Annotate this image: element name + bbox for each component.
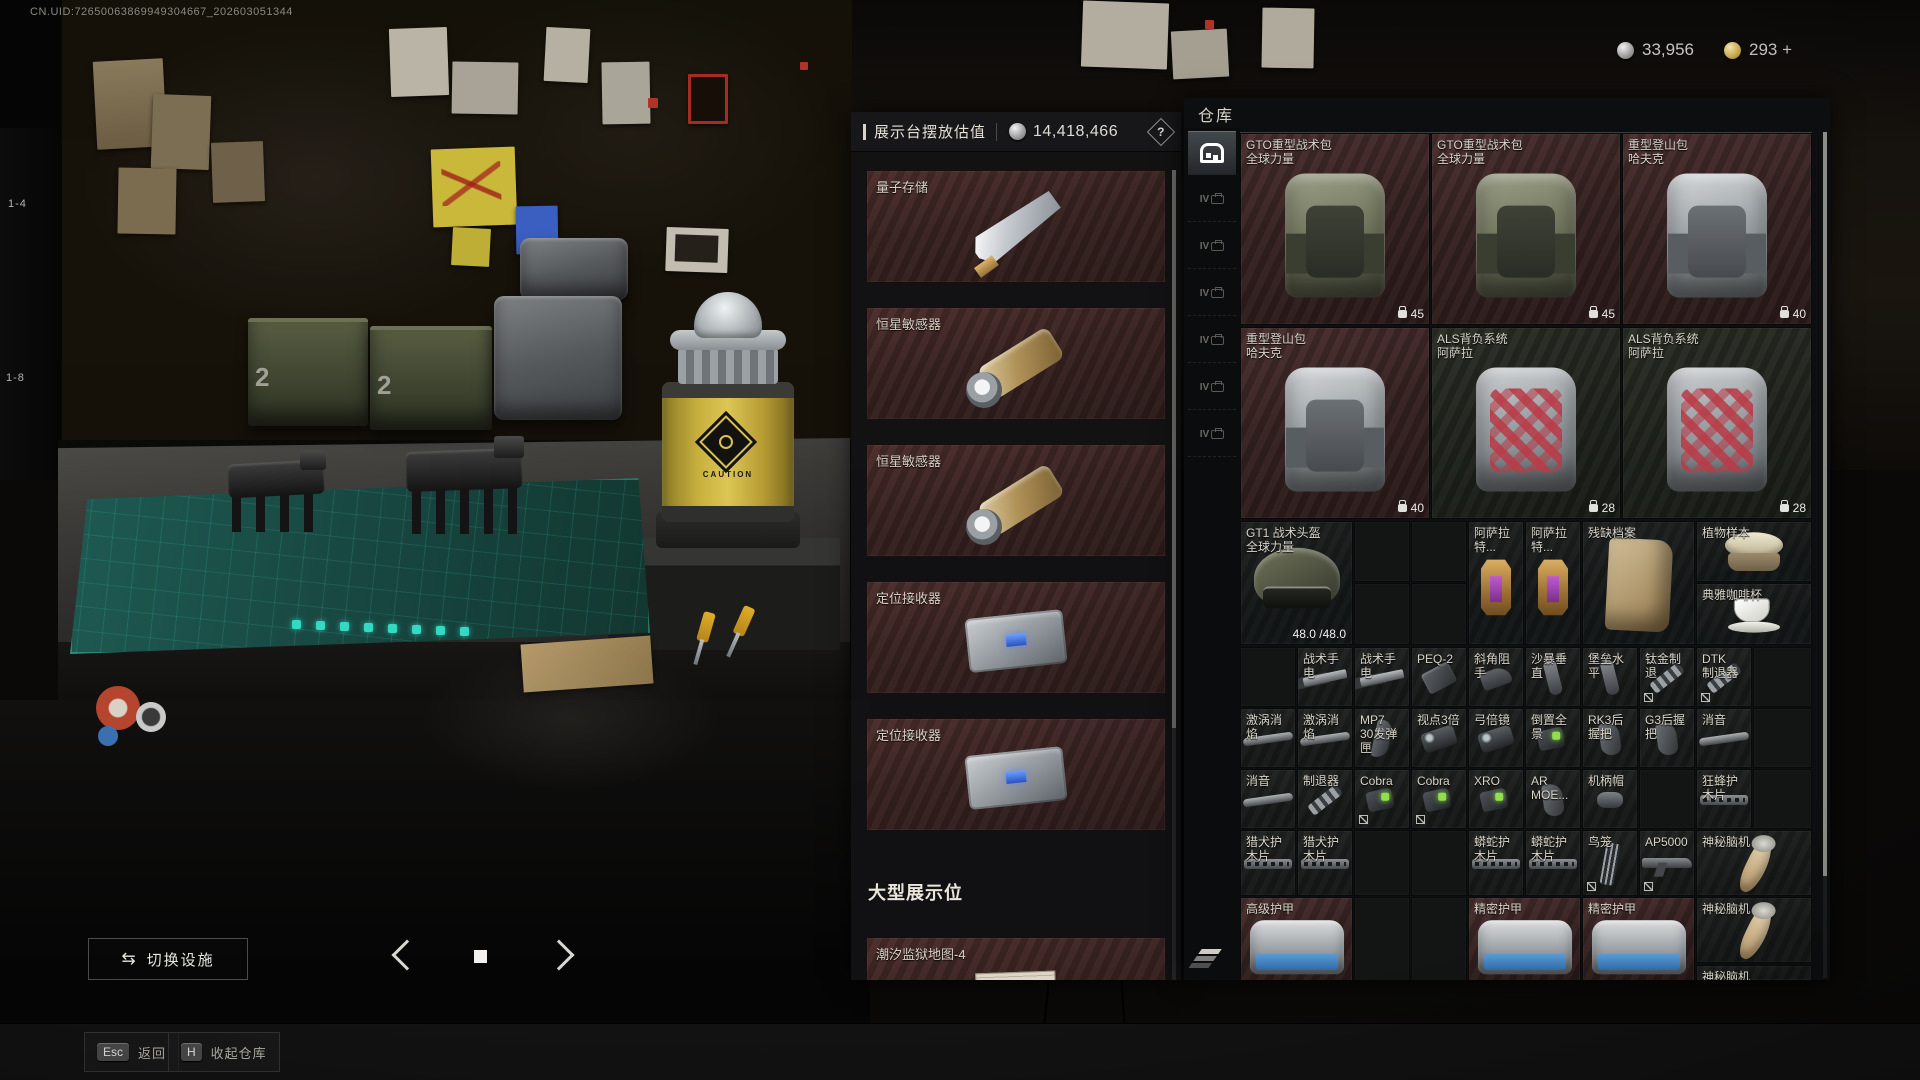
- warehouse-item[interactable]: G3后握把: [1639, 708, 1695, 768]
- warehouse-title: 仓库: [1198, 102, 1234, 126]
- cutting-mat: [70, 478, 650, 654]
- item-label: ALS背负系统阿萨拉: [1623, 328, 1811, 360]
- capacity-badge: 45: [1589, 307, 1615, 321]
- warehouse-item[interactable]: 消音: [1240, 769, 1296, 829]
- warehouse-empty-cell: [1753, 708, 1812, 768]
- item-art: [867, 308, 1165, 419]
- item-label: 视点3倍: [1412, 709, 1466, 727]
- warehouse-item[interactable]: 神秘脑机: [1696, 897, 1812, 963]
- warehouse-scrollbar[interactable]: [1823, 132, 1827, 978]
- currency-bar: 33,956 293 +: [1617, 40, 1792, 60]
- round-sticker: [136, 702, 166, 732]
- warehouse-item[interactable]: 蟒蛇护木片: [1525, 830, 1581, 896]
- collapse-warehouse-button[interactable]: H 收起仓库: [168, 1032, 280, 1072]
- warehouse-tab-case-tier[interactable]: IV: [1188, 413, 1236, 457]
- kit-marker-icon: [1644, 882, 1653, 891]
- warehouse-item[interactable]: 重型登山包哈夫克 40: [1622, 133, 1812, 325]
- warehouse-item[interactable]: GT1 战术头盔全球力量 48.0 /48.0: [1240, 521, 1353, 645]
- robot-figure-legs: [232, 492, 324, 532]
- capacity-badge: 45: [1398, 307, 1424, 321]
- case-icon: [1211, 336, 1224, 345]
- container-tier-icon: IV: [1200, 241, 1224, 252]
- warehouse-item[interactable]: GTO重型战术包全球力量 45: [1431, 133, 1621, 325]
- case-icon: [1211, 195, 1224, 204]
- warehouse-item[interactable]: 重型登山包哈夫克 40: [1240, 327, 1430, 519]
- bag-icon: [1780, 310, 1789, 318]
- item-label: 倒置全景: [1526, 709, 1580, 741]
- bag-icon: [1780, 504, 1789, 512]
- silver-coin-icon: [1617, 42, 1634, 59]
- mat-led: [436, 626, 445, 635]
- warehouse-tab-case-tier[interactable]: IV: [1188, 225, 1236, 269]
- warehouse-item[interactable]: 神秘脑机: [1696, 965, 1812, 980]
- item-label: G3后握把: [1640, 709, 1694, 741]
- mat-led: [364, 623, 373, 632]
- warehouse-empty-cell: [1753, 647, 1812, 707]
- map-pin: [800, 62, 808, 70]
- game-screen: 1-4 1-8 2 2 CAUTION CN.UID:7265006386: [0, 0, 1920, 1080]
- warehouse-item[interactable]: 狂蜂护木片: [1696, 769, 1752, 829]
- pinned-paper: [151, 94, 212, 170]
- mat-led: [292, 620, 301, 629]
- warehouse-item[interactable]: 弓倍镜: [1468, 708, 1524, 768]
- item-art: [867, 445, 1165, 556]
- warehouse-item[interactable]: 阿萨拉特...: [1468, 521, 1524, 645]
- warehouse-item[interactable]: 鸟笼: [1582, 830, 1638, 896]
- warehouse-item[interactable]: 制退器: [1297, 769, 1353, 829]
- item-label: 狂蜂护木片: [1697, 770, 1751, 802]
- robot-figure-head: [494, 436, 524, 458]
- warehouse-item[interactable]: XRO: [1468, 769, 1524, 829]
- stash-icon: [1200, 143, 1224, 163]
- item-label: DTK制退器: [1697, 648, 1751, 680]
- warehouse-grid: GTO重型战术包全球力量 45 GTO重型战术包全球力量 45 重型登山包哈夫克…: [1240, 132, 1812, 980]
- item-label: 神秘脑机: [1697, 898, 1811, 916]
- bag-icon: [1398, 310, 1407, 318]
- pinned-paper: [1171, 29, 1229, 80]
- mat-led: [388, 624, 397, 633]
- pinned-photo: [665, 227, 728, 273]
- large-display-slot[interactable]: 潮汐监狱地图-4: [866, 937, 1166, 980]
- item-label: 消音: [1697, 709, 1751, 727]
- kit-marker-icon: [1587, 882, 1596, 891]
- item-label: 典雅咖啡杯: [1697, 584, 1811, 602]
- pinned-paper: [544, 27, 591, 83]
- warehouse-empty-cell: [1354, 521, 1410, 582]
- scrollbar-thumb[interactable]: [1823, 132, 1827, 876]
- item-label: 机柄帽: [1583, 770, 1637, 788]
- pinned-paper: [117, 167, 176, 234]
- item-label: 猎犬护木片: [1241, 831, 1295, 863]
- map-pin: [1205, 20, 1214, 29]
- h-keycap: H: [181, 1043, 202, 1061]
- warehouse-item[interactable]: ALS背负系统阿萨拉 28: [1622, 327, 1812, 519]
- pinned-paper: [211, 141, 265, 203]
- warehouse-empty-cell: [1240, 647, 1296, 707]
- warehouse-item[interactable]: 钛金制退: [1639, 647, 1695, 707]
- warehouse-empty-cell: [1411, 521, 1467, 582]
- case-icon: [1211, 430, 1224, 439]
- switch-facility-button[interactable]: ⇆ 切换设施: [88, 938, 248, 980]
- valuation-value-group: 14,418,466: [996, 123, 1118, 141]
- pinned-paper: [389, 27, 449, 97]
- warehouse-item[interactable]: 猎犬护木片: [1240, 830, 1296, 896]
- item-label: 制退器: [1298, 770, 1352, 788]
- item-art: [867, 719, 1165, 830]
- robot-figure-legs: [412, 486, 524, 534]
- item-label: Cobra: [1412, 770, 1466, 788]
- warehouse-tab-case-tier[interactable]: IV: [1188, 366, 1236, 410]
- item-label: 堡垒水平: [1583, 648, 1637, 680]
- bottom-hotkey-bar: Esc 返回 H 收起仓库: [0, 1023, 1920, 1080]
- item-label: MP730发弹匣: [1355, 709, 1409, 755]
- item-label: GTO重型战术包全球力量: [1432, 134, 1620, 166]
- warehouse-item[interactable]: 战术手电: [1297, 647, 1353, 707]
- warehouse-item[interactable]: 精密护甲: [1582, 897, 1695, 980]
- hazard-glyph-icon: [719, 435, 733, 449]
- mat-led: [460, 627, 469, 636]
- bag-icon: [1589, 504, 1598, 512]
- warehouse-empty-cell: [1354, 830, 1410, 896]
- warehouse-tab-strip: IV IV IV IV IV IV: [1184, 128, 1240, 980]
- item-label: 高级护甲: [1241, 898, 1352, 916]
- warehouse-empty-cell: [1753, 769, 1812, 829]
- warehouse-item[interactable]: 阿萨拉特...: [1525, 521, 1581, 645]
- item-label: 植物样本: [1697, 522, 1811, 540]
- item-label: GT1 战术头盔全球力量: [1241, 522, 1352, 554]
- switch-icon: ⇆: [121, 949, 137, 969]
- currency-silver[interactable]: 33,956: [1617, 40, 1694, 60]
- warehouse-panel: 仓库 IV IV IV IV IV: [1184, 98, 1830, 980]
- warehouse-item[interactable]: AP5000: [1639, 830, 1695, 896]
- item-label: AP5000: [1640, 831, 1694, 849]
- red-framed-photo: [688, 74, 728, 124]
- help-button[interactable]: ?: [1147, 117, 1175, 145]
- canister-band: [662, 506, 794, 522]
- shelf-label: 1-8: [6, 372, 25, 384]
- warehouse-item[interactable]: 神秘脑机: [1696, 830, 1812, 896]
- warehouse-item[interactable]: 精密护甲: [1468, 897, 1581, 980]
- sticky-note-yellow-small: [451, 227, 491, 267]
- warehouse-item[interactable]: Cobra: [1411, 769, 1467, 829]
- case-icon: [1211, 383, 1224, 392]
- robot-figure-head: [300, 450, 326, 470]
- item-label: Cobra: [1355, 770, 1409, 788]
- item-label: 战术手电: [1298, 648, 1352, 680]
- capacity-badge: 40: [1398, 501, 1424, 515]
- item-art: [1583, 522, 1694, 644]
- scrollbar-thumb[interactable]: [1172, 170, 1176, 728]
- warehouse-item[interactable]: ALS背负系统阿萨拉 28: [1431, 327, 1621, 519]
- warehouse-item[interactable]: Cobra: [1354, 769, 1410, 829]
- item-label: PEQ-2: [1412, 648, 1466, 666]
- back-label: 返回: [138, 1043, 166, 1062]
- floor-light: [420, 650, 720, 790]
- container-tier-icon: IV: [1200, 382, 1224, 393]
- warehouse-item[interactable]: PEQ-2: [1411, 647, 1467, 707]
- warehouse-tab-case-tier[interactable]: IV: [1188, 319, 1236, 363]
- warehouse-tab-case-tier[interactable]: IV: [1188, 178, 1236, 222]
- display-slot[interactable]: 量子存储: [866, 170, 1166, 283]
- case-icon: [1211, 242, 1224, 251]
- warehouse-item[interactable]: 激涡消焰: [1297, 708, 1353, 768]
- item-label: 沙暴垂直: [1526, 648, 1580, 680]
- warehouse-item[interactable]: 堡垒水平: [1582, 647, 1638, 707]
- map-pin: [648, 98, 658, 108]
- crate-number: 2: [255, 362, 269, 393]
- bag-icon: [1398, 504, 1407, 512]
- item-art: [867, 171, 1165, 282]
- item-art: [867, 938, 1165, 980]
- sticky-note-yellow: [431, 147, 518, 228]
- item-label: 猎犬护木片: [1298, 831, 1352, 863]
- mat-led: [316, 621, 325, 630]
- item-label: 鸟笼: [1583, 831, 1637, 849]
- item-label: 激涡消焰: [1241, 709, 1295, 741]
- round-sticker: [98, 726, 118, 746]
- valuation-header: 展示台摆放估值 14,418,466 ?: [851, 112, 1181, 152]
- pinned-paper: [452, 61, 519, 114]
- currency-gold-value: 293 +: [1749, 40, 1792, 60]
- currency-silver-value: 33,956: [1642, 40, 1694, 60]
- tool-case-small: [520, 238, 628, 300]
- gold-coin-icon: [1724, 42, 1741, 59]
- item-label: 神秘脑机: [1697, 966, 1811, 980]
- warehouse-empty-cell: [1354, 583, 1410, 645]
- kit-marker-icon: [1416, 815, 1425, 824]
- warehouse-item[interactable]: MP730发弹匣: [1354, 708, 1410, 768]
- warehouse-item[interactable]: 植物样本: [1696, 521, 1812, 582]
- round-sticker: [96, 686, 140, 730]
- item-label: 神秘脑机: [1697, 831, 1811, 849]
- esc-keycap: Esc: [97, 1043, 129, 1061]
- item-label: ALS背负系统阿萨拉: [1432, 328, 1620, 360]
- warehouse-item[interactable]: DTK制退器: [1696, 647, 1752, 707]
- warehouse-item[interactable]: GTO重型战术包全球力量 45: [1240, 133, 1430, 325]
- kit-marker-icon: [1359, 815, 1368, 824]
- pinned-paper: [601, 62, 650, 125]
- item-label: 斜角阻手: [1469, 648, 1523, 680]
- item-label: 激涡消焰: [1298, 709, 1352, 741]
- shelf-label: 1-4: [8, 198, 27, 210]
- item-label: RK3后握把: [1583, 709, 1637, 741]
- display-slot[interactable]: 定位接收器: [866, 581, 1166, 694]
- item-label: 蟒蛇护木片: [1526, 831, 1580, 863]
- tool-case: [494, 296, 622, 420]
- coin-icon: [1009, 123, 1026, 140]
- warehouse-tab-stash[interactable]: [1188, 131, 1236, 175]
- warehouse-item[interactable]: 猎犬护木片: [1297, 830, 1353, 896]
- item-label: 精密护甲: [1469, 898, 1580, 916]
- warehouse-item[interactable]: RK3后握把: [1582, 708, 1638, 768]
- crate-number: 2: [377, 370, 391, 401]
- warehouse-item[interactable]: 战术手电: [1354, 647, 1410, 707]
- bag-icon: [1589, 310, 1598, 318]
- pinned-paper: [1081, 1, 1169, 70]
- container-tier-icon: IV: [1200, 194, 1224, 205]
- item-label: 重型登山包哈夫克: [1623, 134, 1811, 166]
- panel-scrollbar[interactable]: [1172, 170, 1176, 980]
- item-label: 残缺档案: [1583, 522, 1694, 540]
- warehouse-item[interactable]: 高级护甲: [1240, 897, 1353, 980]
- item-label: 弓倍镜: [1469, 709, 1523, 727]
- warehouse-item[interactable]: 机柄帽: [1582, 769, 1638, 829]
- kit-marker-icon: [1701, 693, 1710, 702]
- warehouse-empty-cell: [1411, 583, 1467, 645]
- warehouse-item[interactable]: 激涡消焰: [1240, 708, 1296, 768]
- warehouse-item[interactable]: 斜角阻手: [1468, 647, 1524, 707]
- container-tier-icon: IV: [1200, 335, 1224, 346]
- display-slot[interactable]: 定位接收器: [866, 718, 1166, 831]
- item-art: [867, 582, 1165, 693]
- collapse-warehouse-label: 收起仓库: [211, 1043, 267, 1062]
- item-label: 阿萨拉特...: [1526, 522, 1580, 554]
- warehouse-item[interactable]: 消音: [1696, 708, 1752, 768]
- warehouse-item[interactable]: 视点3倍: [1411, 708, 1467, 768]
- item-label: AR MOE...: [1526, 770, 1580, 802]
- case-icon: [1211, 289, 1224, 298]
- warehouse-item[interactable]: 残缺档案: [1582, 521, 1695, 645]
- canister-band: [662, 382, 794, 398]
- item-label: 阿萨拉特...: [1469, 522, 1523, 554]
- canister-neck: [678, 348, 778, 384]
- item-label: GTO重型战术包全球力量: [1241, 134, 1429, 166]
- warehouse-empty-cell: [1354, 897, 1410, 980]
- capacity-badge: 28: [1780, 501, 1806, 515]
- warehouse-item[interactable]: 沙暴垂直: [1525, 647, 1581, 707]
- pinned-paper: [1261, 8, 1314, 69]
- container-tier-icon: IV: [1200, 429, 1224, 440]
- ammo-crate: 2: [248, 318, 368, 426]
- item-label: 蟒蛇护木片: [1469, 831, 1523, 863]
- currency-gold[interactable]: 293 +: [1724, 40, 1792, 60]
- warehouse-empty-cell: [1411, 897, 1467, 980]
- item-label: 消音: [1241, 770, 1295, 788]
- display-slot-list: 量子存储 恒星敏感器 恒星敏感器 定位接收器 定位接收器 大型展示位 潮汐监狱地…: [851, 152, 1181, 980]
- warehouse-empty-cell: [1411, 830, 1467, 896]
- warehouse-tab-case-tier[interactable]: IV: [1188, 272, 1236, 316]
- back-button[interactable]: Esc 返回: [84, 1032, 179, 1072]
- valuation-title: 展示台摆放估值: [874, 121, 986, 142]
- valuation-value: 14,418,466: [1033, 123, 1118, 141]
- mat-led: [340, 622, 349, 631]
- player-uid: CN.UID:72650063869949304667_202603051344: [30, 6, 293, 18]
- container-tier-icon: IV: [1200, 288, 1224, 299]
- mat-led: [412, 625, 421, 634]
- ammo-crate: 2: [370, 326, 492, 430]
- large-display-section-title: 大型展示位: [868, 879, 1164, 905]
- capacity-badge: 28: [1589, 501, 1615, 515]
- side-shelf: [0, 128, 58, 480]
- item-label: 重型登山包哈夫克: [1241, 328, 1429, 360]
- item-label: 钛金制退: [1640, 648, 1694, 680]
- warehouse-item[interactable]: 典雅咖啡杯: [1696, 583, 1812, 645]
- warehouse-item[interactable]: AR MOE...: [1525, 769, 1581, 829]
- layers-icon[interactable]: [1198, 949, 1222, 954]
- display-valuation-panel: 展示台摆放估值 14,418,466 ? 量子存储 恒星敏感器 恒星敏感器 定位…: [851, 112, 1181, 980]
- display-slot[interactable]: 恒星敏感器: [866, 444, 1166, 557]
- capacity-badge: 40: [1780, 307, 1806, 321]
- item-label: 精密护甲: [1583, 898, 1694, 916]
- durability-value: 48.0 /48.0: [1293, 627, 1346, 641]
- item-label: 战术手电: [1355, 648, 1409, 680]
- item-label: XRO: [1469, 770, 1523, 788]
- switch-facility-label: 切换设施: [147, 949, 215, 970]
- warehouse-empty-cell: [1639, 769, 1695, 829]
- warehouse-item[interactable]: 蟒蛇护木片: [1468, 830, 1524, 896]
- warehouse-item[interactable]: 倒置全景: [1525, 708, 1581, 768]
- display-slot[interactable]: 恒星敏感器: [866, 307, 1166, 420]
- header-accent: [863, 124, 866, 140]
- kit-marker-icon: [1644, 693, 1653, 702]
- page-indicator[interactable]: [474, 950, 487, 963]
- canister-caution-label: CAUTION: [662, 470, 794, 479]
